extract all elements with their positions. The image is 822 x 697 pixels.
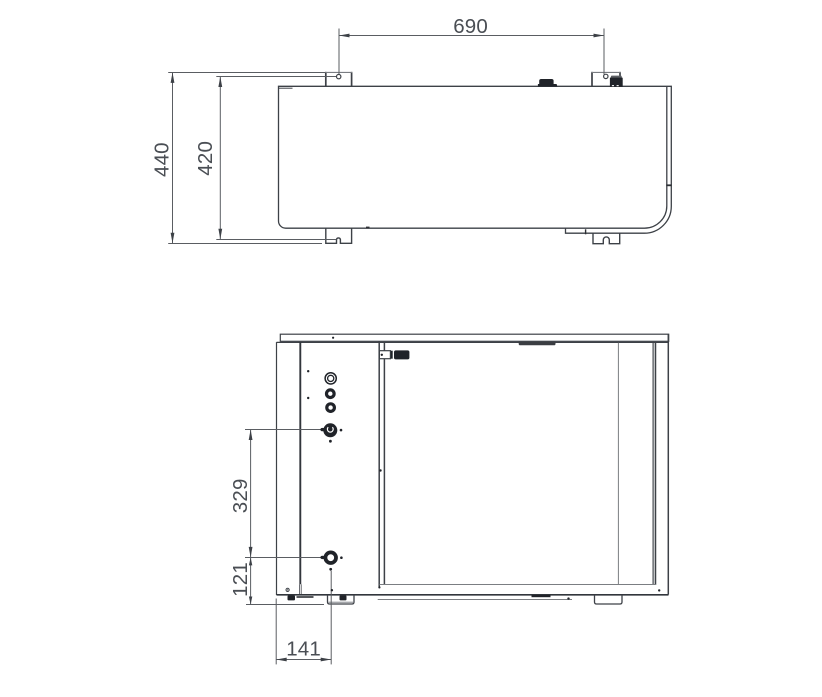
svg-text:420: 420	[194, 141, 217, 176]
svg-text:690: 690	[453, 15, 488, 38]
svg-text:141: 141	[286, 637, 321, 660]
svg-text:329: 329	[229, 478, 252, 513]
svg-text:440: 440	[151, 142, 174, 177]
svg-text:121: 121	[229, 562, 252, 597]
